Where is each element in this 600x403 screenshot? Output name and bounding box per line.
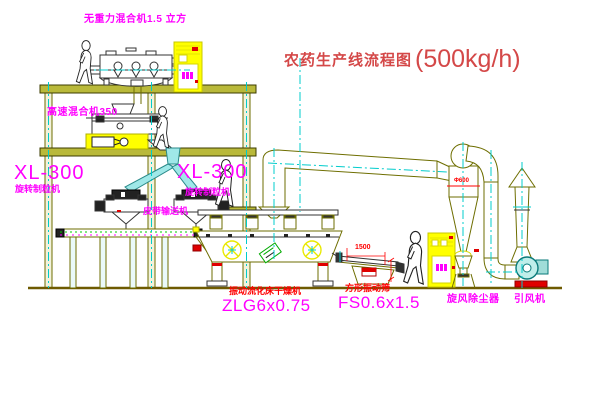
induced-draft-fan <box>515 257 548 287</box>
label-cyclone: 旋风除尘器 <box>447 295 500 305</box>
person-icon <box>404 231 424 284</box>
control-cabinet-right <box>428 233 455 287</box>
fluid-bed-dryer <box>193 210 342 286</box>
label-dryer-name: 振动流化床干燥机 <box>229 287 301 296</box>
label-high-speed-mixer: 高速混合机350 <box>47 108 118 118</box>
label-fan: 引风机 <box>514 295 546 305</box>
process-flow-diagram: 农药生产线流程图 (500kg/h) 无重力混合机1.5 立方 高速混合机350… <box>0 0 600 403</box>
label-sieve-model: FS0.6x1.5 <box>338 294 420 311</box>
label-sieve-name: 方形振动筛 <box>345 284 390 293</box>
title-text: 农药生产线流程图 <box>284 47 412 68</box>
gravity-mixer <box>84 48 188 104</box>
label-granulator-left-model: XL-300 <box>14 163 85 183</box>
person-icon <box>76 41 92 84</box>
belt-conveyor <box>56 229 222 288</box>
dimension-cyclone-diameter: Φ600 <box>454 178 469 184</box>
control-cabinet-top <box>174 42 202 92</box>
exhaust-duct <box>259 150 452 218</box>
label-gravity-mixer: 无重力混合机1.5 立方 <box>84 15 187 25</box>
title-capacity: (500kg/h) <box>415 47 521 72</box>
label-granulator-left-name: 旋转制粒机 <box>15 185 60 194</box>
rotary-granulator-left <box>95 195 148 229</box>
label-granulator-right-name: 旋转制粒机 <box>185 188 230 197</box>
dimension-sieve-length: 1500 <box>355 244 371 251</box>
label-belt-conveyor: 皮带输送机 <box>143 207 188 216</box>
label-dryer-model: ZLG6x0.75 <box>222 297 311 314</box>
vibrating-sieve <box>332 248 404 284</box>
diagram-title: 农药生产线流程图 (500kg/h) <box>284 47 521 72</box>
label-granulator-right-model: XL-300 <box>177 162 248 182</box>
